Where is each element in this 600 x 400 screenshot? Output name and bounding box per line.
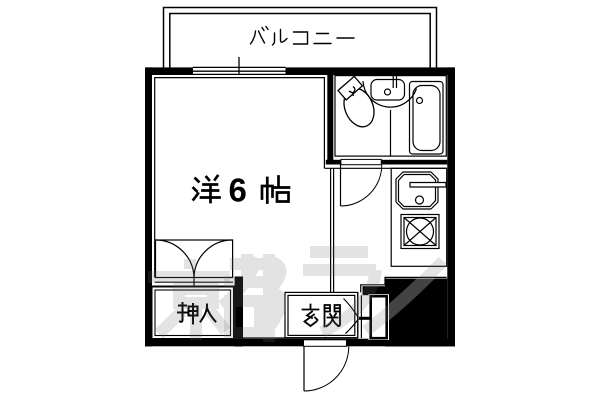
svg-text:6: 6 (229, 172, 247, 209)
